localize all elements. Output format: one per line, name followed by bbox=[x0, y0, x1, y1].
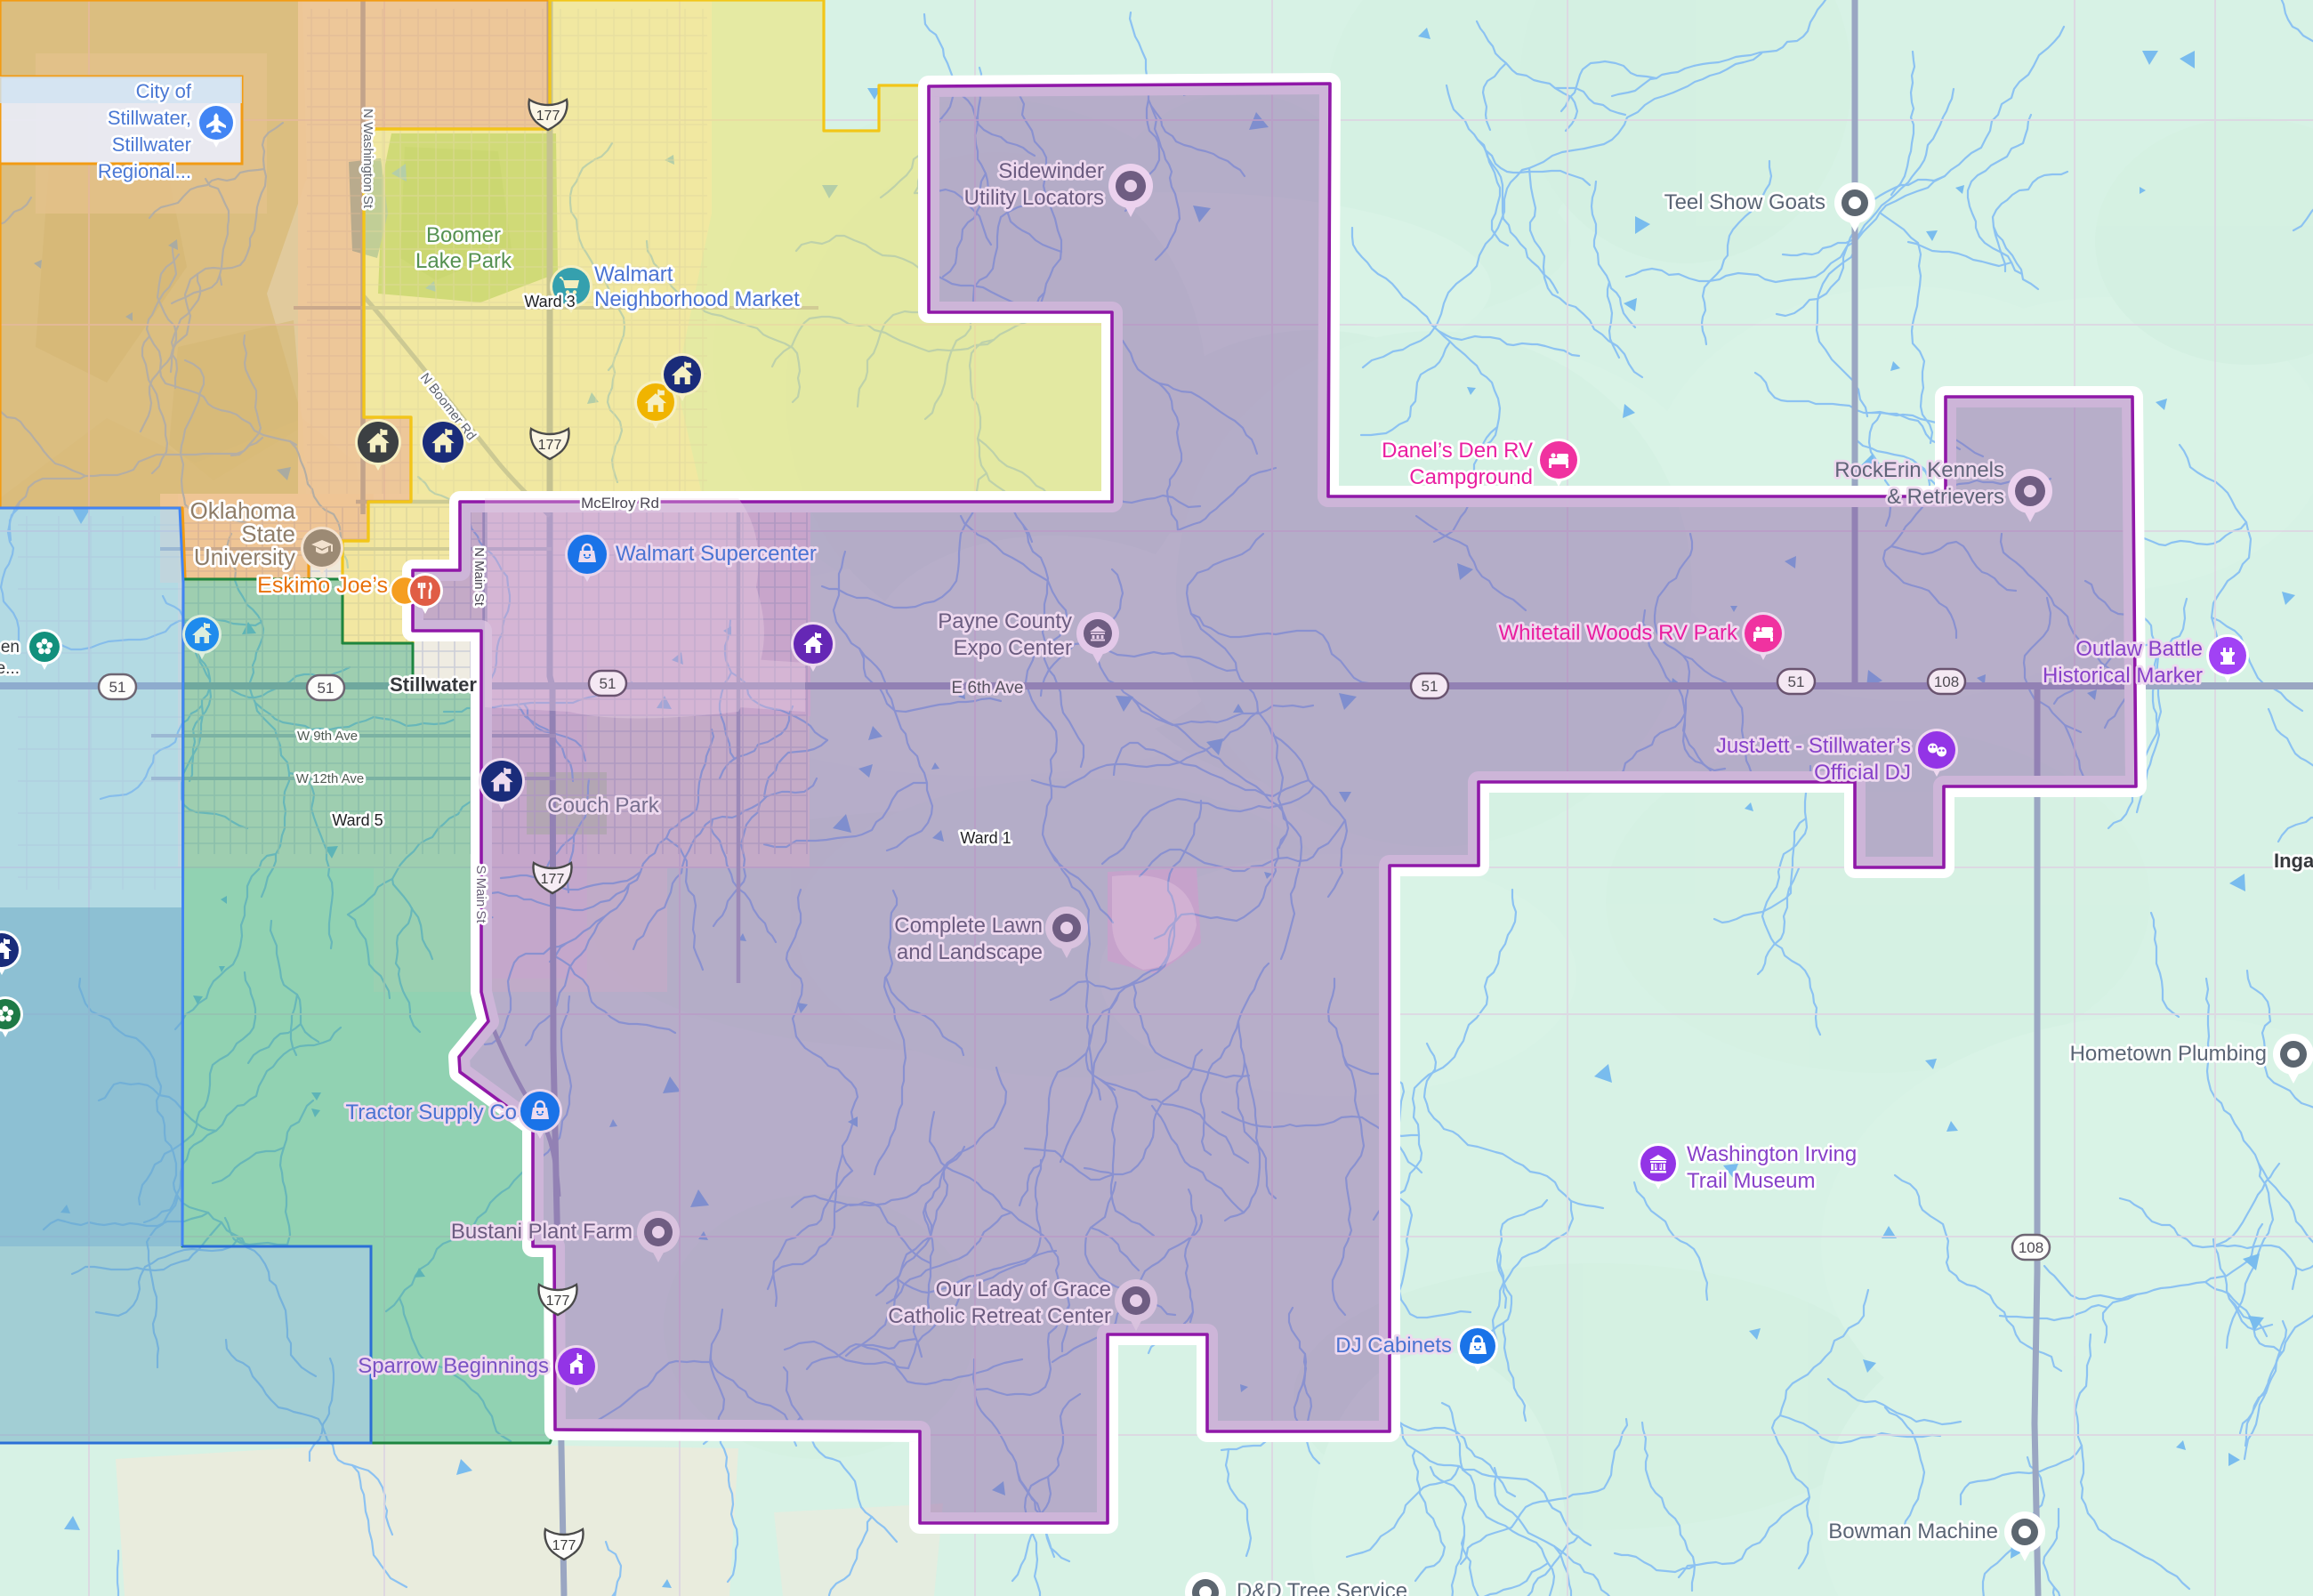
svg-text:N Washington St: N Washington St bbox=[360, 109, 375, 209]
svg-text:Stillwater: Stillwater bbox=[390, 673, 477, 696]
svg-text:Inga: Inga bbox=[2274, 850, 2313, 872]
svg-text:M: M bbox=[1656, 1162, 1662, 1170]
svg-text:E 6th Ave: E 6th Ave bbox=[952, 679, 1024, 697]
svg-text:51: 51 bbox=[318, 680, 334, 697]
svg-text:177: 177 bbox=[538, 438, 562, 453]
svg-text:DJ Cabinets: DJ Cabinets bbox=[1335, 1334, 1452, 1358]
svg-text:Ward 5: Ward 5 bbox=[332, 811, 383, 829]
svg-text:W 12th Ave: W 12th Ave bbox=[296, 771, 364, 786]
svg-text:Hometown Plumbing: Hometown Plumbing bbox=[2070, 1042, 2267, 1066]
svg-text:Ward 3: Ward 3 bbox=[524, 293, 575, 310]
svg-text:177: 177 bbox=[541, 872, 565, 887]
svg-text:Bustani Plant Farm: Bustani Plant Farm bbox=[451, 1220, 633, 1244]
svg-text:51: 51 bbox=[1788, 673, 1805, 690]
svg-text:51: 51 bbox=[109, 679, 126, 696]
svg-text:51: 51 bbox=[600, 675, 617, 692]
svg-text:Bowman Machine: Bowman Machine bbox=[1828, 1519, 1998, 1544]
svg-text:Tractor Supply Co: Tractor Supply Co bbox=[345, 1100, 517, 1124]
svg-text:Ward 1: Ward 1 bbox=[960, 829, 1011, 847]
svg-text:177: 177 bbox=[552, 1538, 576, 1553]
svg-text:D&D Tree Service: D&D Tree Service bbox=[1237, 1579, 1407, 1596]
svg-text:Whitetail Woods RV Park: Whitetail Woods RV Park bbox=[1498, 621, 1738, 645]
svg-text:177: 177 bbox=[536, 109, 560, 124]
svg-text:Eskimo Joe’s: Eskimo Joe’s bbox=[257, 573, 388, 598]
svg-text:Couch Park: Couch Park bbox=[547, 794, 659, 818]
svg-text:S Main St: S Main St bbox=[473, 865, 488, 923]
svg-text:177: 177 bbox=[546, 1294, 570, 1309]
svg-text:108: 108 bbox=[2019, 1239, 2043, 1256]
svg-text:W 9th Ave: W 9th Ave bbox=[297, 729, 358, 744]
svg-text:108: 108 bbox=[1934, 673, 1959, 690]
svg-text:Walmart Supercenter: Walmart Supercenter bbox=[616, 542, 817, 566]
svg-text:51: 51 bbox=[1422, 678, 1439, 695]
svg-text:N Main St: N Main St bbox=[471, 547, 487, 607]
svg-text:Sparrow Beginnings: Sparrow Beginnings bbox=[358, 1354, 549, 1378]
svg-text:McElroy Rd: McElroy Rd bbox=[581, 495, 659, 512]
svg-text:Teel Show Goats: Teel Show Goats bbox=[1664, 190, 1825, 214]
